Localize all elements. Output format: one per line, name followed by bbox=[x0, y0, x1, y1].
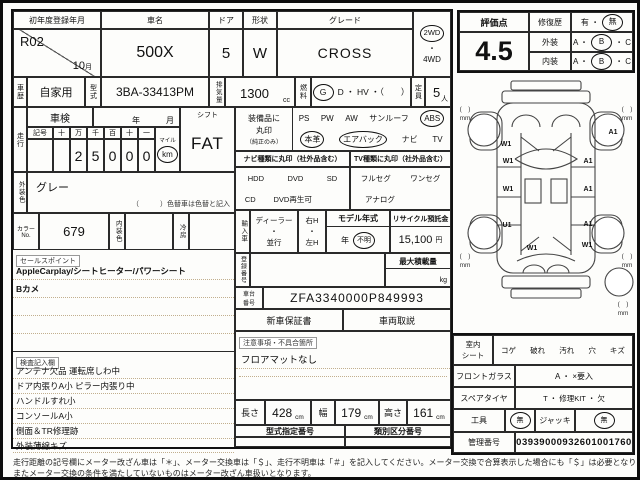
damage-mark-w1: W1 bbox=[503, 186, 514, 193]
length-value: 428 bbox=[272, 406, 292, 420]
history-value: 自家用 bbox=[27, 77, 85, 107]
damage-mark-u1: U1 bbox=[503, 222, 512, 229]
shaken-year-month-cell: 年 月 bbox=[93, 107, 180, 127]
max-load-unit: kg bbox=[440, 277, 447, 284]
import-left-handle: 左H bbox=[306, 237, 319, 248]
exterior-grade-label: 外装 bbox=[529, 32, 571, 52]
model-code-value: 3BA-33413PM bbox=[101, 77, 209, 107]
interior-grade-value: A ・ B ・ C bbox=[571, 52, 633, 71]
shaken-year-suffix: 年 bbox=[132, 115, 140, 126]
door-lines bbox=[521, 133, 571, 255]
tv-analog: アナログ bbox=[365, 194, 395, 205]
tool-label: 工具 bbox=[453, 409, 505, 432]
windshield-lens bbox=[515, 149, 577, 169]
mileage-col-10: 十 bbox=[121, 127, 138, 139]
doors-value: 5 bbox=[209, 29, 243, 77]
chassis-label-2: 番号 bbox=[243, 298, 255, 307]
mileage-label: 走行 bbox=[13, 107, 27, 172]
front-bumper bbox=[502, 91, 590, 103]
car-name-label: 車名 bbox=[101, 11, 209, 29]
interior-grade-post: ・ C bbox=[615, 56, 631, 67]
seat-condition-options: コゲ 破れ 汚れ 穴 キズ bbox=[493, 335, 633, 365]
height-value-cell: 161 cm bbox=[407, 400, 451, 425]
model-year-header: モデル年式 bbox=[327, 211, 389, 227]
length-value-cell: 428 cm bbox=[265, 400, 311, 425]
front-glass-label: フロントガラス bbox=[453, 365, 515, 387]
exterior-grade-b-circled: B bbox=[591, 34, 612, 51]
seat-label-2: シート bbox=[462, 350, 485, 361]
exterior-grade-value: A ・ B ・ C bbox=[571, 32, 633, 52]
import-dot-2: ・ bbox=[308, 226, 316, 237]
spare-tire-value: T ・ 修理KIT ・ 欠 bbox=[515, 387, 633, 409]
color-no-label-2: No. bbox=[21, 233, 30, 239]
month-suffix: 月 bbox=[85, 64, 92, 71]
equipment-label-cell: 装備品に 丸印 （純正のみ） bbox=[235, 107, 293, 151]
front-seat-left-arc bbox=[512, 115, 540, 127]
model-code-label: 型式 bbox=[85, 77, 101, 107]
import-handle-cell: 右H ・ 左H bbox=[298, 210, 326, 253]
drive-dot: ・ bbox=[428, 43, 436, 54]
footer-notes: 走行距離の記号欄にメーター改ざん車は「＊」、メーター交換車は「＄」、走行不明車は… bbox=[13, 457, 635, 479]
width-value: 179 bbox=[341, 406, 361, 420]
equip-ps: PS bbox=[299, 114, 310, 123]
interior-grade-b-circled: B bbox=[591, 53, 612, 70]
tv-type-options: フルセグ ワンセグ アナログ bbox=[350, 167, 451, 210]
color-change-note: （ ）色替車は色替と記入 bbox=[132, 199, 230, 209]
capacity-unit: 人 bbox=[441, 94, 448, 104]
shape-label: 形状 bbox=[243, 11, 277, 29]
fuel-label: 燃料 bbox=[295, 77, 311, 107]
measure-bracket: ( ) bbox=[618, 301, 629, 308]
equipment-row-1: PS PW AW サンルーフ ABS bbox=[293, 107, 451, 129]
rear-bumper-bottom bbox=[511, 289, 581, 298]
sales-point-empty-2 bbox=[13, 316, 234, 334]
capacity-value: 5 bbox=[433, 85, 440, 100]
shaken-label: 車検 bbox=[27, 107, 93, 127]
equipment-row-2: 本革 エアバック ナビ TV bbox=[293, 129, 451, 151]
width-value-cell: 179 cm bbox=[335, 400, 379, 425]
front-bumper-top bbox=[511, 81, 581, 90]
sales-points-block: セールスポイント AppleCarplay/シートヒーター/パワーシート Bカメ bbox=[13, 250, 235, 351]
nav-hdd: HDD bbox=[248, 174, 264, 183]
caution-box: 注意事項・不具合箇所 フロアマットなし bbox=[235, 331, 451, 400]
nav-dvd-play: DVD再生可 bbox=[274, 194, 312, 205]
color-no-value: 679 bbox=[39, 213, 109, 250]
mileage-digit-0 bbox=[53, 139, 70, 172]
equip-abs-circled: ABS bbox=[420, 110, 444, 127]
wheel-front-left bbox=[468, 114, 500, 146]
first-reg-label: 初年度登録年月 bbox=[13, 11, 101, 29]
car-name-value: 500X bbox=[101, 29, 209, 77]
recycle-unit: 円 bbox=[435, 235, 442, 245]
equip-sunroof: サンルーフ bbox=[369, 113, 409, 124]
tool-value: 無 bbox=[505, 409, 535, 432]
interior-grade-pre: A ・ bbox=[573, 56, 588, 67]
height-label: 高さ bbox=[379, 400, 407, 425]
fuel-options: D ・ HV ・（ ） bbox=[338, 86, 410, 98]
damage-mark-w1: W1 bbox=[527, 245, 538, 252]
color-no-label-1: カラー bbox=[17, 224, 35, 233]
evaluation-box: 評価点 4.5 修復歴 有 ・ 無 外装 A ・ B ・ C 内装 A ・ B … bbox=[457, 10, 635, 73]
equipment-label-3: （純正のみ） bbox=[246, 137, 282, 146]
control-number-value: 03939000932601001760 bbox=[515, 432, 633, 453]
capacity-cell: 5 人 bbox=[425, 77, 451, 107]
measure-bracket: ( ) bbox=[622, 253, 633, 260]
exterior-color-label: 外装色 bbox=[13, 172, 27, 213]
equip-airbag-circled: エアバック bbox=[339, 131, 387, 148]
measure-unit-mm: mm bbox=[622, 262, 633, 269]
class-division-header: 類別区分番号 bbox=[345, 425, 451, 437]
car-damage-diagram: W1W1W1U1W1W1A1A1A1A1( )mm( )mm( )mm( )mm… bbox=[455, 75, 637, 331]
control-number-label: 管理番号 bbox=[453, 432, 515, 453]
damage-mark-w1: W1 bbox=[501, 141, 512, 148]
first-reg-month-num: 10 bbox=[73, 60, 85, 72]
import-label: 輸入車 bbox=[235, 210, 250, 253]
seat-burn: コゲ bbox=[501, 345, 516, 356]
fuel-gasoline-circled: G bbox=[313, 84, 334, 101]
shape-value: W bbox=[243, 29, 277, 77]
mileage-digit-4: 0 bbox=[121, 139, 138, 172]
rear-window-arc bbox=[517, 254, 575, 261]
chassis-value: ZFA3340000P849993 bbox=[263, 287, 451, 309]
rear-bumper bbox=[502, 276, 590, 288]
measure-unit-mm: mm bbox=[460, 262, 471, 269]
import-dealer-cell: ディーラー ・ 並行 bbox=[250, 210, 298, 253]
tv-oneseg: ワンセグ bbox=[410, 173, 440, 184]
equip-navi: ナビ bbox=[402, 134, 418, 145]
import-right-handle: 右H bbox=[306, 215, 319, 226]
history-label: 車歴 bbox=[13, 77, 27, 107]
repair-none-circled: 無 bbox=[602, 14, 623, 31]
spare-tire-label: スペアタイヤ bbox=[453, 387, 515, 409]
score-label: 評価点 bbox=[459, 12, 529, 32]
equipment-label-1: 装備品に bbox=[248, 113, 280, 124]
mileage-col-100k: 十 bbox=[53, 127, 70, 139]
import-dealer: ディーラー bbox=[256, 215, 293, 226]
recycle-value: 15,100 bbox=[399, 234, 433, 246]
measure-bracket: ( ) bbox=[460, 106, 471, 113]
mileage-col-1k: 千 bbox=[87, 127, 104, 139]
displacement-label: 排気量 bbox=[209, 77, 225, 107]
sales-point-empty-1 bbox=[13, 298, 234, 316]
nav-dvd: DVD bbox=[287, 174, 303, 183]
shift-cell: シフト FAT bbox=[180, 107, 235, 172]
import-parallel: 並行 bbox=[267, 237, 282, 248]
wheel-rear-right bbox=[592, 217, 624, 249]
height-unit: cm bbox=[436, 414, 445, 421]
front-seat-right-arc bbox=[552, 115, 580, 127]
interior-grade-label: 内装 bbox=[529, 52, 571, 71]
fuel-cell: G D ・ HV ・（ ） bbox=[311, 77, 411, 107]
rear-seat-arcs bbox=[523, 265, 569, 273]
tool-none-circled: 無 bbox=[510, 412, 531, 429]
seat-box-left bbox=[525, 179, 541, 203]
capacity-label: 定員 bbox=[411, 77, 425, 107]
doors-label: ドア bbox=[209, 11, 243, 29]
exterior-grade-pre: A ・ bbox=[573, 37, 588, 48]
shaken-month-suffix: 月 bbox=[166, 115, 174, 126]
type-designation-value bbox=[235, 437, 345, 447]
inspection-note-5: 側面＆TR修理跡 bbox=[13, 424, 234, 439]
measure-unit-mm: mm bbox=[622, 115, 633, 122]
wheel-rear-left bbox=[468, 217, 500, 249]
equip-leather-circled: 本革 bbox=[300, 131, 324, 148]
ac-value bbox=[189, 213, 235, 250]
registration-number-label: 登録番号 bbox=[235, 253, 250, 287]
mileage-digit-3: 0 bbox=[104, 139, 121, 172]
color-no-label: カラー No. bbox=[13, 213, 39, 250]
mileage-digit-1: 2 bbox=[70, 139, 87, 172]
length-label: 長さ bbox=[235, 400, 265, 425]
model-year-suffix: 年 bbox=[341, 235, 349, 246]
repair-options: 有 ・ bbox=[581, 17, 599, 28]
model-year-cell: モデル年式 年 不明 bbox=[326, 210, 390, 253]
model-year-unknown-circled: 不明 bbox=[353, 232, 375, 249]
seat-box-right bbox=[551, 179, 567, 203]
main-table: 初年度登録年月 車名 ドア 形状 グレード R02 10月 500X 5 W C… bbox=[11, 9, 453, 449]
jack-value: 無 bbox=[575, 409, 633, 432]
inspection-note-6: 外装薄線キズ bbox=[13, 439, 234, 453]
displacement-value: 1300 bbox=[240, 86, 269, 101]
panel-dividers bbox=[497, 167, 595, 225]
measure-unit-mm: mm bbox=[618, 310, 629, 317]
tv-type-header: TV種類に丸印（社外品含む） bbox=[350, 151, 451, 167]
max-load-header: 最大積載量 bbox=[386, 254, 450, 269]
manual-cell: 車両取説 bbox=[343, 309, 451, 331]
warranty-cell: 新車保証書 bbox=[235, 309, 343, 331]
max-load-cell: 最大積載量 kg bbox=[385, 253, 451, 287]
registration-number-value bbox=[250, 253, 385, 287]
ac-label: 冷房 bbox=[173, 213, 189, 250]
grade-label: グレード bbox=[277, 11, 413, 29]
interior-color-value bbox=[125, 213, 173, 250]
sales-point-line-1: AppleCarplay/シートヒーター/パワーシート bbox=[13, 262, 234, 280]
tv-fullseg: フルセグ bbox=[361, 173, 391, 184]
mileage-sign-value bbox=[27, 139, 53, 172]
exterior-grade-post: ・ C bbox=[615, 37, 631, 48]
width-label: 幅 bbox=[311, 400, 335, 425]
drive-type-cell: 2WD ・ 4WD bbox=[413, 11, 451, 77]
height-value: 161 bbox=[413, 406, 433, 420]
type-designation-header: 型式指定番号 bbox=[235, 425, 345, 437]
first-reg-value-cell: R02 10月 bbox=[13, 29, 101, 77]
footer-line-1: 走行距離の記号欄にメーター改ざん車は「＊」、メーター交換車は「＄」、走行不明車は… bbox=[13, 457, 635, 468]
sales-point-line-2: Bカメ bbox=[13, 280, 234, 298]
spare-tire-circle bbox=[605, 268, 633, 296]
equip-aw: AW bbox=[345, 114, 358, 123]
seat-label-1: 室内 bbox=[466, 339, 481, 350]
inspection-note-2: ドア内張りA小 ピラー内張り中 bbox=[13, 379, 234, 394]
mileage-col-10k: 万 bbox=[70, 127, 87, 139]
nav-type-options: HDD DVD SD CD DVD再生可 bbox=[235, 167, 350, 210]
measure-bracket: ( ) bbox=[622, 106, 633, 113]
nav-cd: CD bbox=[245, 195, 256, 204]
import-dot-1: ・ bbox=[270, 226, 278, 237]
interior-color-label: 内装色 bbox=[109, 213, 125, 250]
caution-line-1: フロアマットなし bbox=[236, 350, 450, 369]
exterior-color-value: グレー bbox=[36, 179, 69, 195]
recycle-header: リサイクル預託金 bbox=[391, 211, 450, 227]
inspection-note-1: アンテナ欠品 運転席しわ中 bbox=[13, 364, 234, 379]
jack-none-circled: 無 bbox=[594, 412, 615, 429]
grade-value: CROSS bbox=[277, 29, 413, 77]
seat-hole: 穴 bbox=[588, 345, 596, 356]
inspection-note-3: ハンドルすれ小 bbox=[13, 394, 234, 409]
displacement-unit: cc bbox=[283, 97, 290, 104]
seat-label: 室内 シート bbox=[453, 335, 493, 365]
width-unit: cm bbox=[364, 414, 373, 421]
length-unit: cm bbox=[295, 414, 304, 421]
damage-mark-a1: A1 bbox=[584, 158, 593, 165]
shift-value: FAT bbox=[181, 122, 234, 166]
mileage-col-1: 一 bbox=[138, 127, 155, 139]
inspection-note-4: コンソールA小 bbox=[13, 409, 234, 424]
sales-point-empty-3 bbox=[13, 334, 234, 352]
mileage-digit-2: 5 bbox=[87, 139, 104, 172]
mileage-unit-mile: マイル bbox=[159, 136, 176, 144]
jack-label: ジャッキ bbox=[535, 409, 575, 432]
footer-line-2: またメーター交換の条件を満たしていないものはメーター改ざん車扱いとなります。 bbox=[13, 468, 635, 479]
equip-tv: TV bbox=[432, 135, 442, 144]
caution-dotted-line bbox=[239, 376, 447, 377]
drive-4wd: 4WD bbox=[423, 55, 441, 64]
nav-sd: SD bbox=[327, 174, 337, 183]
damage-mark-w1: W1 bbox=[582, 242, 593, 249]
pillar-lines bbox=[521, 137, 571, 251]
auction-inspection-sheet: 初年度登録年月 車名 ドア 形状 グレード R02 10月 500X 5 W C… bbox=[0, 0, 640, 480]
class-division-value bbox=[345, 437, 451, 447]
caution-tag: 注意事項・不具合箇所 bbox=[239, 337, 317, 349]
repair-history-value: 有 ・ 無 bbox=[571, 12, 633, 32]
measure-bracket: ( ) bbox=[460, 253, 471, 260]
damage-mark-a1: A1 bbox=[609, 129, 618, 136]
exterior-color-cell: グレー （ ）色替車は色替と記入 bbox=[27, 172, 235, 213]
mileage-sign-header: 記号 bbox=[27, 127, 53, 139]
repair-history-label: 修復歴 bbox=[529, 12, 571, 32]
equipment-label-2: 丸印 bbox=[256, 125, 272, 136]
condition-table: 室内 シート コゲ 破れ 汚れ 穴 キズ フロントガラス A ・ ×要入 スペア… bbox=[451, 333, 635, 455]
measure-unit-mm: mm bbox=[460, 115, 471, 122]
seat-tear: 破れ bbox=[530, 345, 545, 356]
damage-mark-a1: A1 bbox=[584, 221, 593, 228]
displacement-cell: 1300 cc bbox=[225, 77, 295, 107]
damage-mark-w1: W1 bbox=[503, 158, 514, 165]
recycle-cell: リサイクル預託金 15,100 円 bbox=[390, 210, 451, 253]
mileage-unit-km-circled: km bbox=[157, 146, 178, 163]
equip-pw: PW bbox=[321, 114, 334, 123]
damage-mark-a1: A1 bbox=[584, 186, 593, 193]
mileage-unit-cell: マイル km bbox=[155, 127, 180, 172]
nav-type-header: ナビ種類に丸印（社外品含む） bbox=[235, 151, 350, 167]
mileage-digit-5: 0 bbox=[138, 139, 155, 172]
shift-label: シフト bbox=[181, 108, 234, 122]
front-glass-value: A ・ ×要入 bbox=[515, 365, 633, 387]
inspection-notes-block: 検査記入欄 アンテナ欠品 運転席しわ中 ドア内張りA小 ピラー内張り中 ハンドル… bbox=[13, 351, 235, 447]
first-reg-month: 10月 bbox=[73, 60, 92, 72]
mileage-col-100: 百 bbox=[104, 127, 121, 139]
drive-2wd-circled: 2WD bbox=[420, 25, 445, 42]
chassis-label-1: 車台 bbox=[243, 289, 255, 298]
seat-stain: 汚れ bbox=[559, 345, 574, 356]
chassis-label: 車台 番号 bbox=[235, 287, 263, 309]
seat-scratch: キズ bbox=[610, 345, 625, 356]
first-reg-era: R02 bbox=[20, 34, 44, 49]
score-value: 4.5 bbox=[459, 32, 529, 71]
